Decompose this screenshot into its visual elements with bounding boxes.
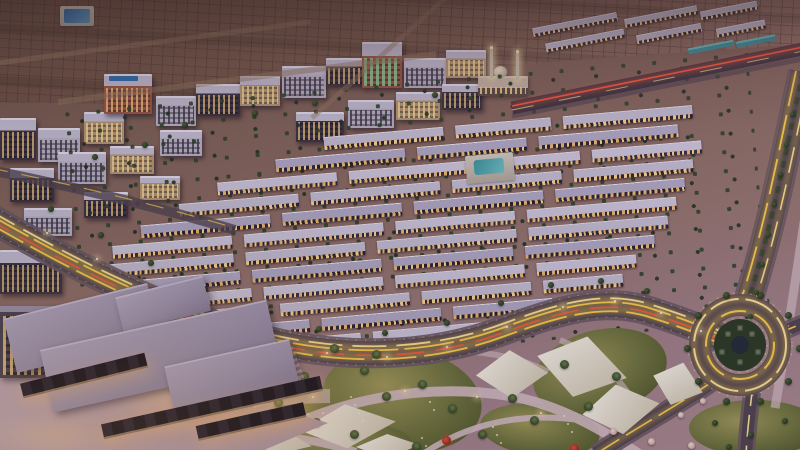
atmosphere-overlay <box>0 0 800 450</box>
aerial-dusk-render <box>0 0 800 450</box>
